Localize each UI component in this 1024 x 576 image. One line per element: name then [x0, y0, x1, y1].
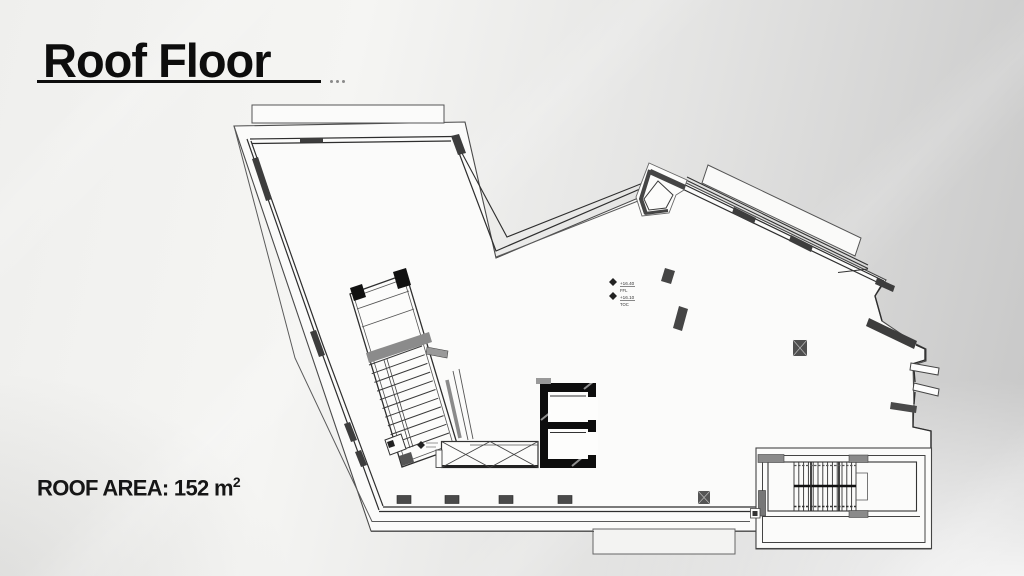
svg-text:+16.40: +16.40: [620, 281, 635, 286]
svg-text:TOC: TOC: [620, 302, 629, 307]
svg-text:FFL: FFL: [620, 288, 628, 293]
svg-text:+16.10: +16.10: [620, 295, 635, 300]
